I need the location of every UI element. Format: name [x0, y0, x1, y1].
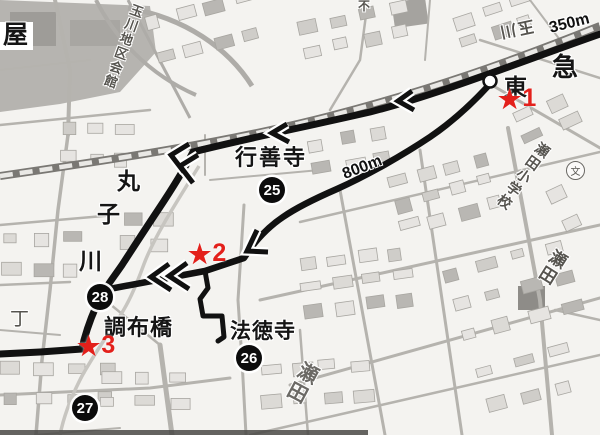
label-tokyu-char2: 急: [552, 54, 578, 80]
star-number: 1: [522, 86, 536, 111]
station-marker: [484, 75, 497, 88]
label-marukogawa-char2: 子: [97, 203, 120, 226]
star-marker-3: ★3: [77, 333, 115, 359]
label-yane: 屋: [0, 22, 33, 50]
stop-circle-27: 27: [72, 395, 98, 421]
label-fu: 不: [358, 0, 370, 12]
star-marker-1: ★1: [498, 86, 536, 112]
route-station-branch: [104, 84, 490, 290]
school-symbol-icon: 文: [566, 161, 585, 180]
label-marukogawa-char3: 川: [79, 250, 102, 273]
star-icon: ★: [188, 241, 211, 267]
star-icon: ★: [498, 86, 521, 112]
star-icon: ★: [77, 333, 100, 359]
label-gyozenji-temple: 行善寺: [235, 147, 307, 169]
route-access-to-temple26: [200, 271, 224, 341]
label-hotokuji-temple: 法徳寺: [230, 321, 296, 342]
stop-circle-25: 25: [259, 177, 285, 203]
star-number: 2: [212, 241, 226, 266]
photo-edge-shadow: [0, 430, 368, 435]
stop-circle-28: 28: [87, 284, 113, 310]
label-chome: 丁: [10, 310, 29, 329]
label-marukogawa-char1: 丸: [117, 170, 140, 193]
stop-circle-26: 26: [236, 345, 262, 371]
map-screenshot: 屋 玉川地区会館 不 玉川 350m 800m 東 急 行善寺 丸 子 川 調布…: [0, 0, 600, 435]
star-marker-2: ★2: [188, 241, 226, 267]
star-number: 3: [101, 333, 115, 358]
